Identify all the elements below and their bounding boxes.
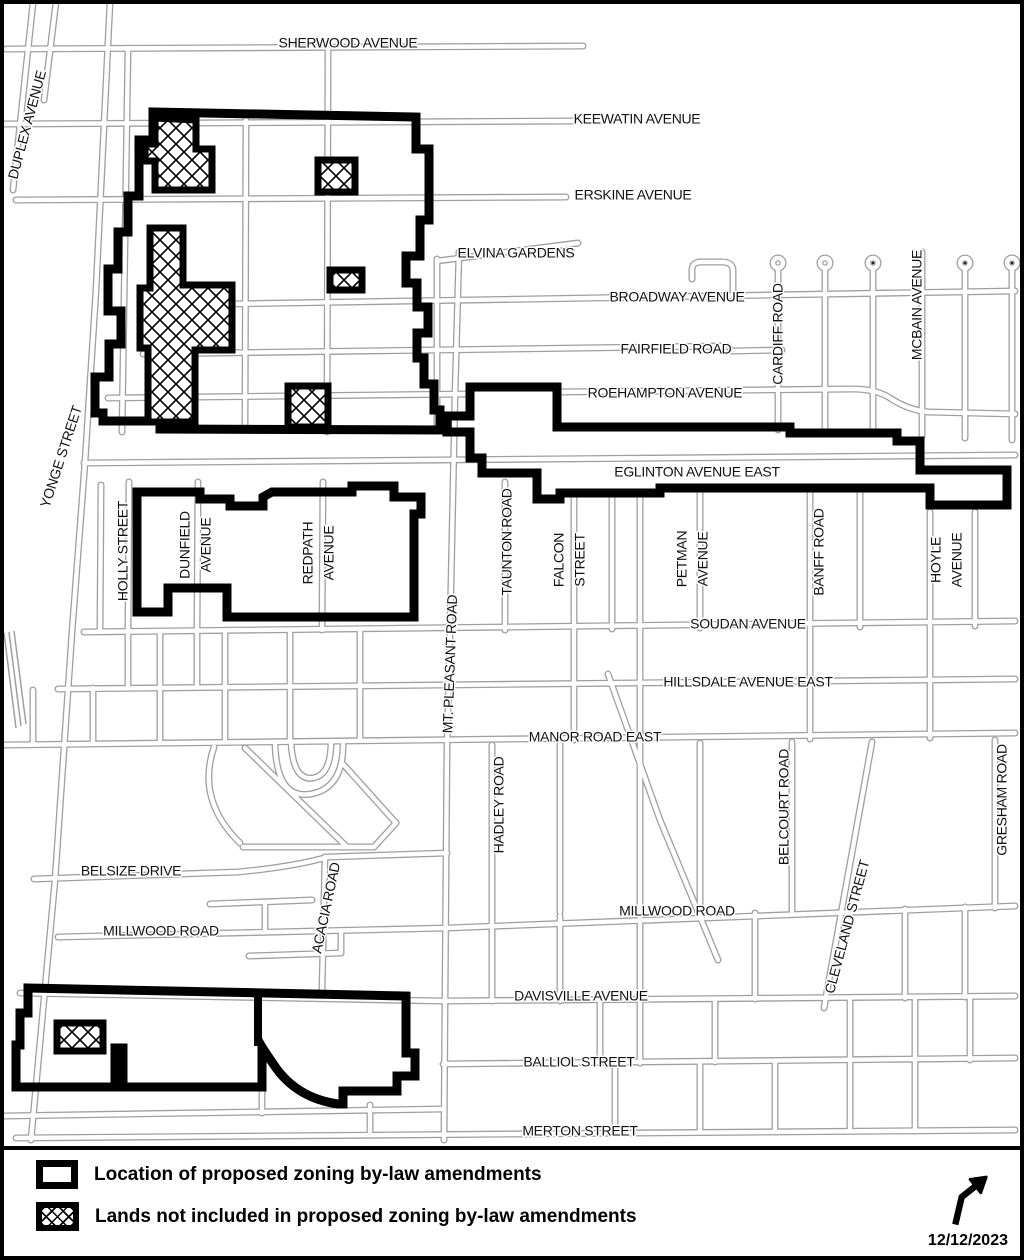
north-arrow-icon xyxy=(934,1166,1004,1230)
excluded-parcel xyxy=(288,386,328,427)
street-label: SHERWOOD AVENUE xyxy=(279,35,418,51)
street-label: ROEHAMPTON AVENUE xyxy=(588,385,743,401)
street-label: CARDIFF ROAD xyxy=(770,283,786,385)
street-label: HADLEY ROAD xyxy=(491,756,507,853)
street-label: ELVINA GARDENS xyxy=(458,245,575,261)
zoning-map-figure: SHERWOOD AVENUEKEEWATIN AVENUEERSKINE AV… xyxy=(0,0,1024,1260)
street-label: MANOR ROAD EAST xyxy=(529,729,662,745)
street-label: AVENUE xyxy=(321,526,337,581)
street-label: SOUDAN AVENUE xyxy=(690,616,806,632)
excluded-parcel xyxy=(318,160,355,192)
street-label: BROADWAY AVENUE xyxy=(609,289,744,305)
street-label: MILLWOOD ROAD xyxy=(619,903,735,919)
legend: Location of proposed zoning by-law amend… xyxy=(4,1146,1020,1256)
street-label: MCBAIN AVENUE xyxy=(909,250,925,360)
legend-label: Location of proposed zoning by-law amend… xyxy=(94,1164,542,1186)
street-label: AVENUE xyxy=(198,518,214,573)
street-label: MERTON STREET xyxy=(522,1123,638,1139)
street-label: EGLINTON AVENUE EAST xyxy=(614,464,780,480)
map-canvas: SHERWOOD AVENUEKEEWATIN AVENUEERSKINE AV… xyxy=(4,4,1020,1146)
street-label: STREET xyxy=(572,533,588,587)
street-label: BELCOURT ROAD xyxy=(776,749,792,865)
legend-item-excluded-lands: Lands not included in proposed zoning by… xyxy=(36,1202,637,1231)
street-label: HILLSDALE AVENUE EAST xyxy=(663,674,833,690)
hatched-swatch xyxy=(36,1202,79,1231)
street-label: TAUNTON ROAD xyxy=(499,488,515,595)
legend-item-proposed-zoning: Location of proposed zoning by-law amend… xyxy=(36,1160,542,1189)
street-label: BALLIOL STREET xyxy=(523,1054,635,1070)
street-label: DUNFIELD xyxy=(177,511,193,579)
street-label: MILLWOOD ROAD xyxy=(103,923,219,939)
street-label: KEEWATIN AVENUE xyxy=(574,111,701,127)
street-label: HOYLE xyxy=(928,537,944,583)
street-label: REDPATH xyxy=(300,522,316,585)
map-date: 12/12/2023 xyxy=(928,1232,1008,1250)
excluded-parcel xyxy=(57,1023,103,1051)
legend-label: Lands not included in proposed zoning by… xyxy=(95,1206,637,1228)
street-label: PETMAN xyxy=(674,531,690,588)
street-label: ERSKINE AVENUE xyxy=(575,187,692,203)
street-label: AVENUE xyxy=(949,533,965,588)
street-label: GRESHAM ROAD xyxy=(994,744,1010,856)
street-label: DAVISVILLE AVENUE xyxy=(514,988,648,1004)
street-label: FALCON xyxy=(551,533,567,587)
street-label: AVENUE xyxy=(695,532,711,587)
street-label: HOLLY STREET xyxy=(115,500,131,601)
street-label: FAIRFIELD ROAD xyxy=(621,341,732,357)
excluded-parcel xyxy=(330,270,362,290)
street-label: BELSIZE DRIVE xyxy=(81,863,181,879)
street-label: BANFF ROAD xyxy=(811,508,827,595)
zoning-outline-swatch xyxy=(36,1160,78,1189)
